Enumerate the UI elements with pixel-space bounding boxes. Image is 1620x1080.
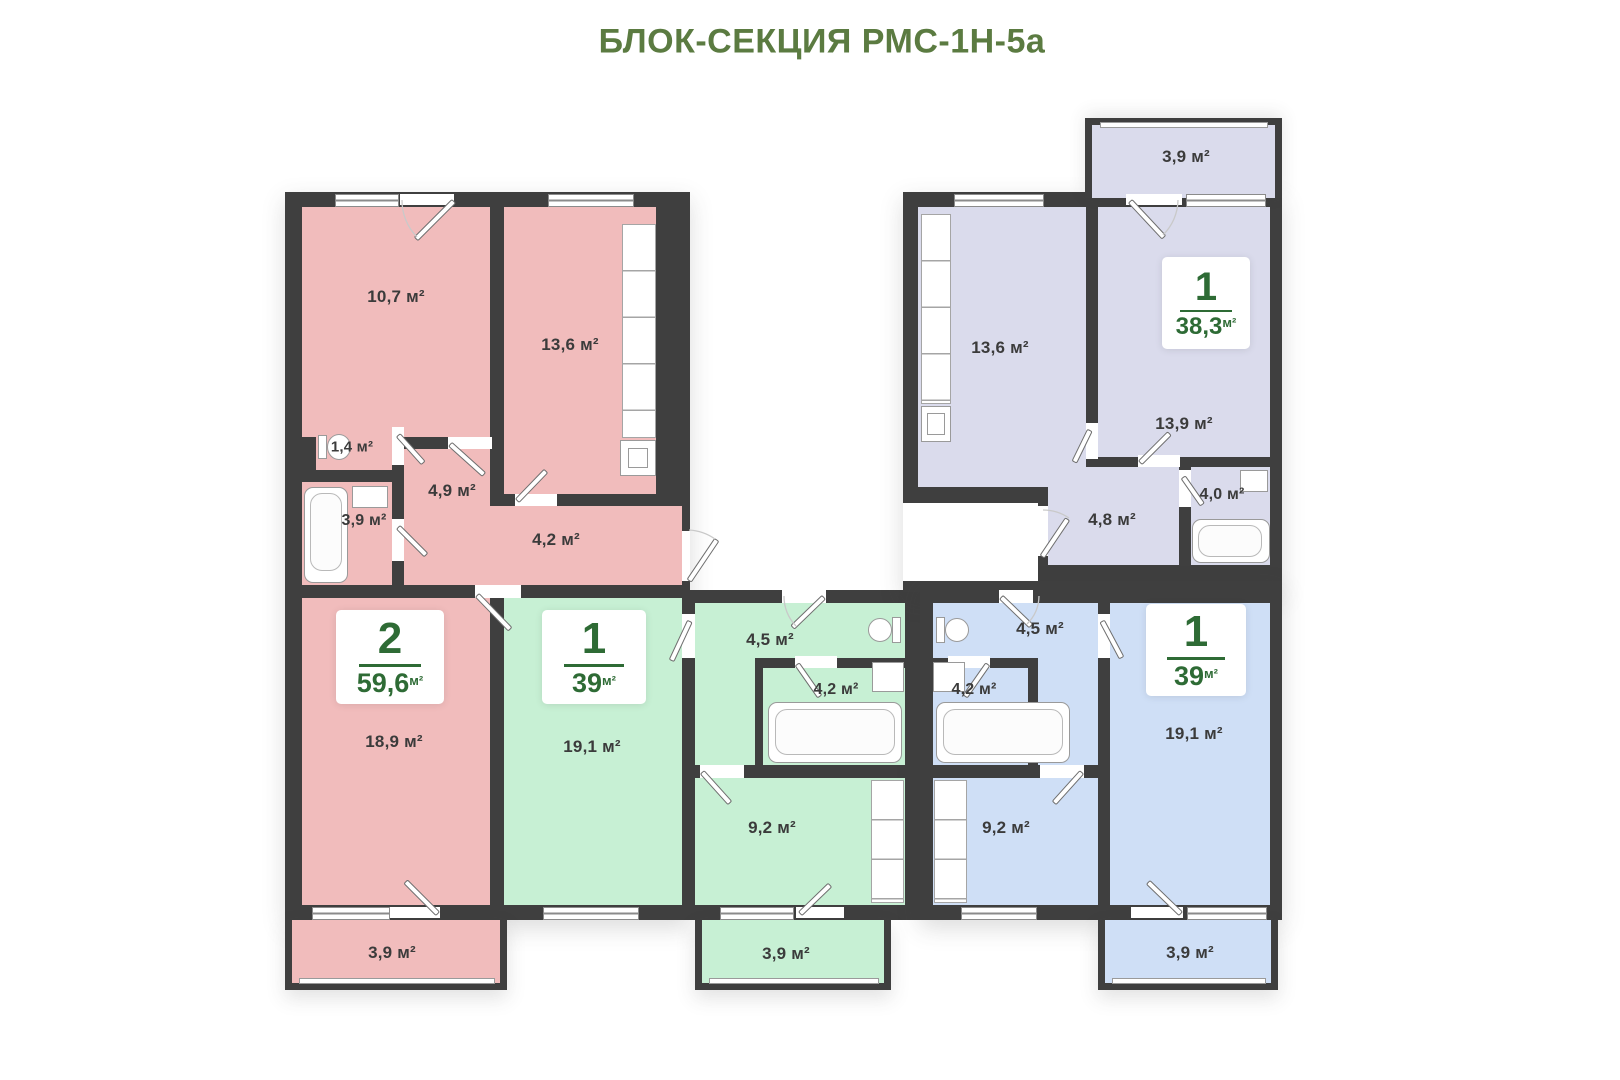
room-area-label: 4,9 м² xyxy=(428,481,476,501)
toilet-icon xyxy=(945,618,969,642)
floor-plan: БЛОК-СЕКЦИЯ РМС-1Н-5а xyxy=(0,0,1620,1080)
kitchen-cabinets-icon xyxy=(622,224,656,438)
toilet-icon xyxy=(892,617,901,643)
room-area-label: 3,9 м² xyxy=(368,943,416,963)
balcony-glazing xyxy=(1112,978,1266,984)
toilet-icon xyxy=(318,435,327,459)
kitchen-sink-icon xyxy=(628,448,648,468)
room-area-label: 13,9 м² xyxy=(1155,414,1212,434)
badge-rooms-count: 2 xyxy=(378,617,402,661)
window xyxy=(335,194,399,207)
stair-landing xyxy=(903,503,1038,581)
room-pink-bedroom xyxy=(302,207,490,437)
room-area-label: 4,5 м² xyxy=(1016,619,1064,639)
window xyxy=(720,907,794,920)
room-area-label: 13,6 м² xyxy=(541,335,598,355)
kitchen-cabinets-icon xyxy=(934,780,967,903)
room-area-label: 4,2 м² xyxy=(532,530,580,550)
room-area-label: 4,2 м² xyxy=(813,681,858,699)
door-leaf xyxy=(687,538,720,583)
room-area-label: 4,5 м² xyxy=(746,630,794,650)
window xyxy=(961,907,1037,920)
balcony-glazing xyxy=(299,978,495,984)
bathtub-icon xyxy=(943,709,1063,755)
door-opening xyxy=(392,427,404,465)
kitchen-cabinets-icon xyxy=(871,780,904,903)
window xyxy=(543,907,639,920)
balcony-glazing xyxy=(709,978,879,984)
sink-icon xyxy=(352,486,388,508)
toilet-icon xyxy=(868,618,892,642)
room-area-label: 4,2 м² xyxy=(951,681,996,699)
kitchen-sink-icon xyxy=(927,413,945,435)
badge-rooms-count: 1 xyxy=(582,617,606,661)
badge-area: 38,3м² xyxy=(1176,315,1237,339)
badge-divider xyxy=(359,664,422,667)
bathtub-icon xyxy=(310,493,342,571)
window xyxy=(954,194,1044,207)
apartment-badge-1room-lavender: 1 38,3м² xyxy=(1162,257,1250,349)
page-title: БЛОК-СЕКЦИЯ РМС-1Н-5а xyxy=(599,23,1046,62)
apartment-badge-1room-blue: 1 39м² xyxy=(1146,604,1246,696)
room-area-label: 9,2 м² xyxy=(748,818,796,838)
room-area-label: 4,0 м² xyxy=(1199,486,1244,504)
window xyxy=(1187,907,1267,920)
badge-divider xyxy=(1167,657,1225,660)
room-area-label: 3,9 м² xyxy=(1162,147,1210,167)
sink-icon xyxy=(872,662,904,692)
room-area-label: 19,1 м² xyxy=(1165,724,1222,744)
badge-rooms-count: 1 xyxy=(1195,267,1217,307)
bathtub-icon xyxy=(1198,525,1262,557)
window xyxy=(548,194,634,207)
room-area-label: 10,7 м² xyxy=(367,287,424,307)
room-area-label: 3,9 м² xyxy=(1166,943,1214,963)
badge-rooms-count: 1 xyxy=(1184,610,1208,654)
room-area-label: 4,8 м² xyxy=(1088,510,1136,530)
closet-icon xyxy=(921,214,951,404)
badge-divider xyxy=(1180,310,1231,313)
window xyxy=(312,907,390,920)
room-area-label: 3,9 м² xyxy=(762,944,810,964)
badge-area: 39м² xyxy=(572,670,616,697)
room-area-label: 9,2 м² xyxy=(982,818,1030,838)
badge-divider xyxy=(564,664,624,667)
balcony-glazing xyxy=(1100,122,1268,128)
room-area-label: 19,1 м² xyxy=(563,737,620,757)
toilet-icon xyxy=(936,617,945,643)
room-green-hall2 xyxy=(695,658,755,765)
window xyxy=(1186,194,1266,207)
room-area-label: 3,9 м² xyxy=(341,512,386,530)
room-area-label: 1,4 м² xyxy=(331,439,373,456)
bathtub-icon xyxy=(775,709,895,755)
room-area-label: 18,9 м² xyxy=(365,732,422,752)
apartment-badge-1room-green: 1 39м² xyxy=(542,610,646,704)
room-area-label: 13,6 м² xyxy=(971,338,1028,358)
apartment-badge-2rooms: 2 59,6м² xyxy=(336,610,444,704)
badge-area: 39м² xyxy=(1174,663,1218,690)
badge-area: 59,6м² xyxy=(357,670,424,697)
